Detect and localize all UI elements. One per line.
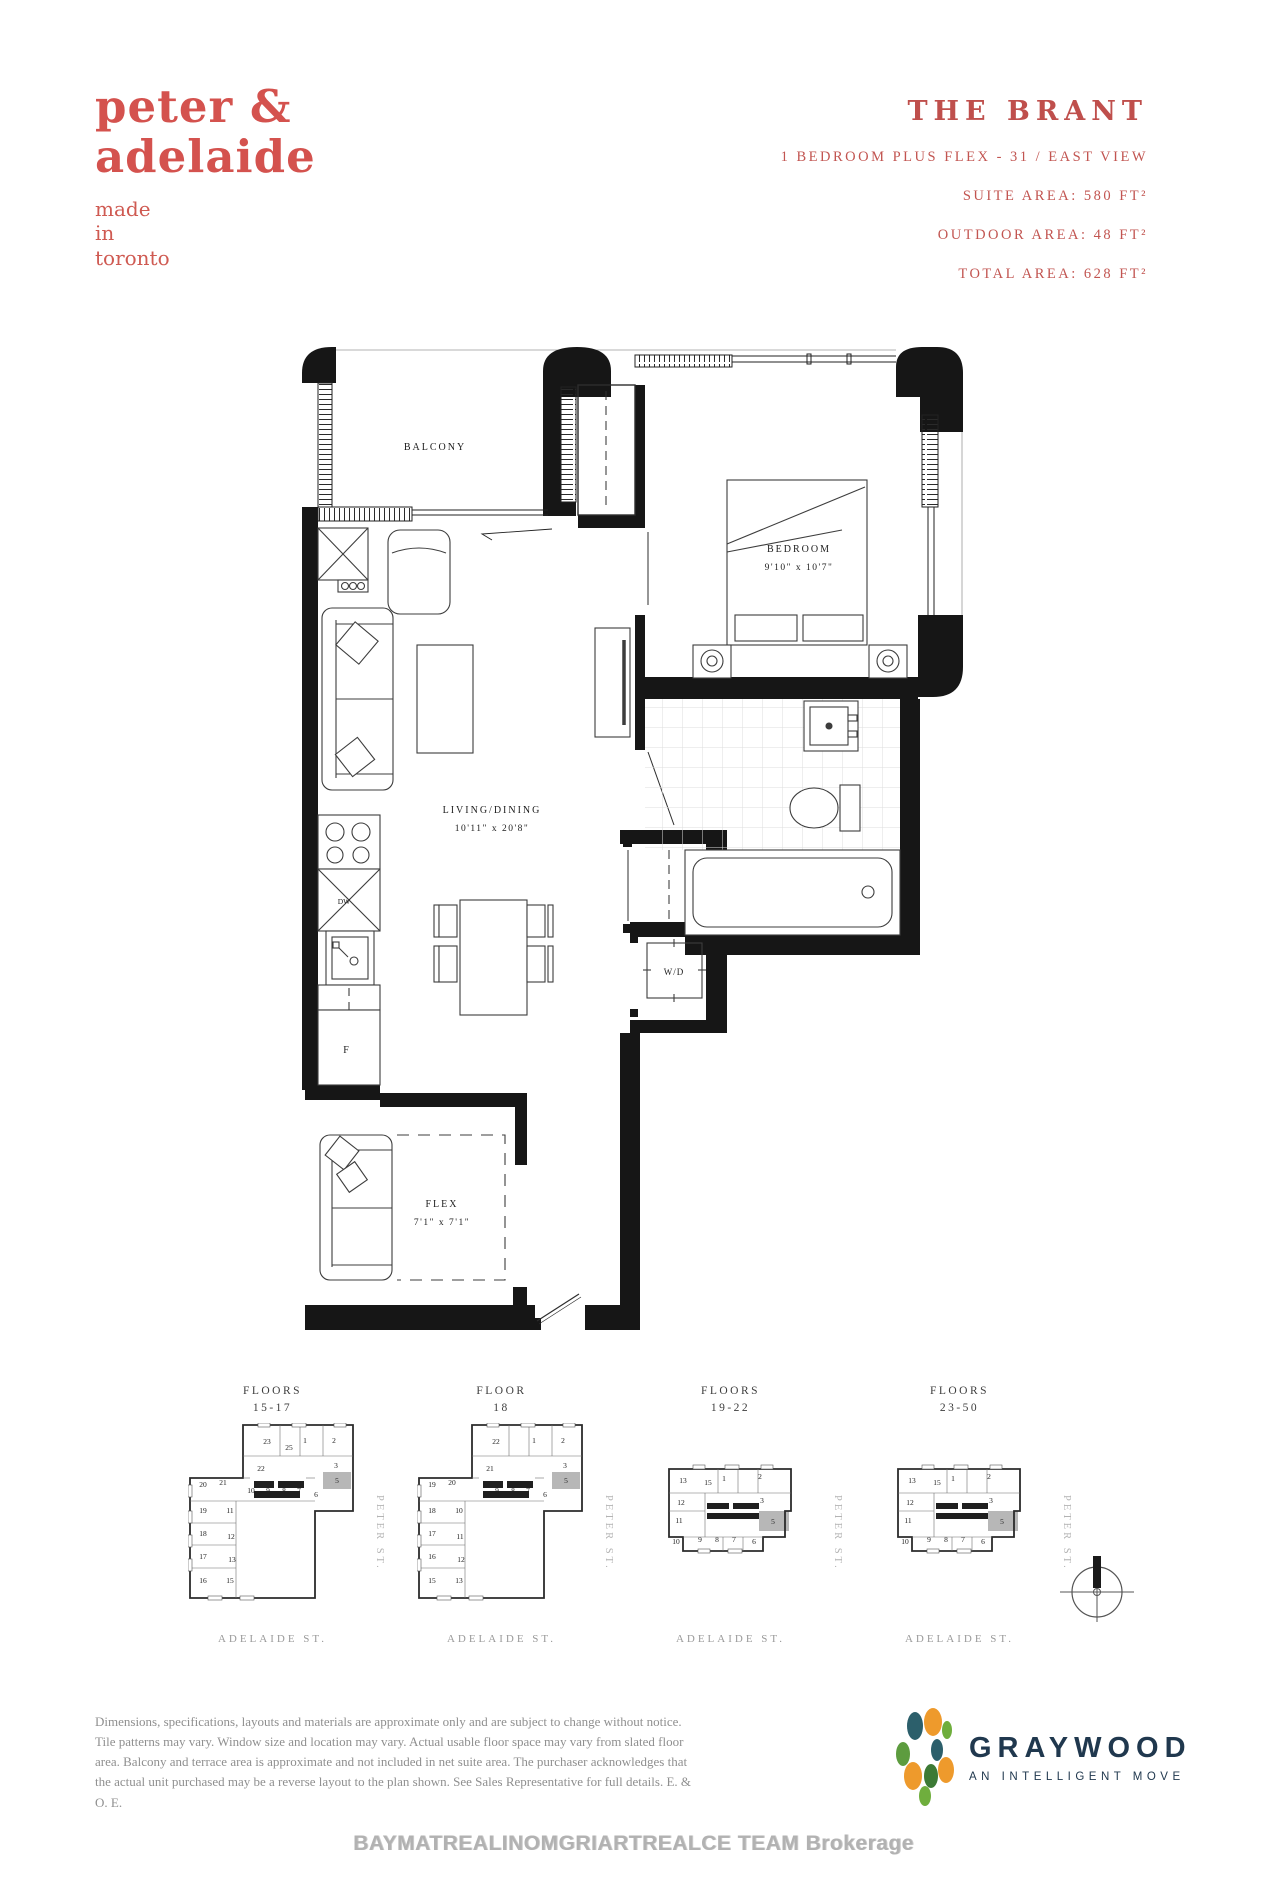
suite-header: THE BRANT 1 BEDROOM PLUS FLEX - 31 / EAS…: [781, 96, 1148, 283]
unit-number: 6: [314, 1490, 318, 1499]
unit-number: 10: [455, 1506, 463, 1515]
dw-label: DW: [338, 897, 351, 906]
unit-number: 2: [561, 1436, 565, 1445]
unit-number: 21: [219, 1478, 227, 1487]
unit-number: 9: [266, 1486, 270, 1495]
unit-number: 8: [715, 1535, 719, 1544]
adelaide-st-label: ADELAIDE ST.: [158, 1633, 387, 1645]
unit-number: 1: [722, 1474, 726, 1483]
unit-number: 15: [933, 1478, 941, 1487]
unit-number: 7: [526, 1486, 530, 1495]
dining-chair: [527, 905, 545, 937]
unit-number: 1: [303, 1436, 307, 1445]
unit-number: 7: [732, 1535, 736, 1544]
balcony-label: BALCONY: [404, 442, 466, 453]
wd-label: W/D: [664, 967, 685, 977]
peter-st-label: PETER ST.: [832, 1495, 843, 1571]
unit-number: 9: [927, 1535, 931, 1544]
unit-number: 8: [282, 1486, 286, 1495]
unit-number: 12: [457, 1555, 465, 1564]
graywood-logo: GRAYWOOD AN INTELLIGENT MOVE: [893, 1708, 1192, 1806]
unit-number: 1: [532, 1436, 536, 1445]
unit-number: 19: [428, 1480, 436, 1489]
hall-closet: [578, 385, 635, 515]
unit-number: 22: [257, 1464, 265, 1473]
balcony-rail: [318, 507, 412, 521]
floorplan-page: peter & adelaide made in toronto THE BRA…: [0, 0, 1267, 1900]
unit-number: 18: [428, 1506, 436, 1515]
fridge-label: F: [343, 1045, 349, 1056]
unit-number: 5: [1000, 1517, 1004, 1526]
coffee-table: [417, 645, 473, 753]
unit-number: 9: [495, 1486, 499, 1495]
unit-number: 15: [704, 1478, 712, 1487]
unit-number: 19: [199, 1506, 207, 1515]
unit-number: 8: [944, 1535, 948, 1544]
unit-number: 8: [511, 1486, 515, 1495]
unit-number: 2: [987, 1472, 991, 1481]
unit-number: 3: [760, 1496, 764, 1505]
graywood-tagline: AN INTELLIGENT MOVE: [969, 1771, 1192, 1783]
unit-number: 9: [698, 1535, 702, 1544]
dining-chair: [527, 946, 545, 982]
suite-title: THE BRANT: [781, 96, 1148, 127]
unit-number: 11: [904, 1516, 911, 1525]
unit-number: 5: [771, 1517, 775, 1526]
unit-number: 6: [981, 1537, 985, 1546]
peter-st-label: PETER ST.: [374, 1495, 385, 1571]
key-plan: FLOORS23-50131512123115109876PETER ST.AD…: [845, 1383, 1074, 1663]
brand-logo-line1: peter &: [95, 82, 316, 132]
unit-number: 5: [335, 1476, 339, 1485]
key-plan-footprint: 22122131920987651810171116121513: [417, 1423, 587, 1608]
flex-label: FLEX: [426, 1199, 459, 1210]
bathroom-floor: [645, 699, 900, 850]
unit-number: 12: [677, 1498, 685, 1507]
unit-number: 13: [679, 1476, 687, 1485]
suite-subtitle: 1 BEDROOM PLUS FLEX - 31 / EAST VIEW: [781, 149, 1148, 166]
unit-number: 22: [492, 1437, 500, 1446]
unit-number: 21: [486, 1464, 494, 1473]
key-plan-title: FLOORS19-22: [616, 1383, 845, 1423]
fridge: [318, 1010, 380, 1085]
bedroom-east-window: [922, 415, 938, 507]
brand-logo: peter & adelaide made in toronto: [95, 82, 316, 270]
unit-number: 17: [428, 1529, 436, 1538]
dining-table: [460, 900, 527, 1015]
adelaide-st-label: ADELAIDE ST.: [845, 1633, 1074, 1645]
balcony-west-window: [318, 383, 332, 507]
bedroom-label: BEDROOM: [767, 544, 831, 555]
unit-number: 10: [901, 1537, 909, 1546]
unit-number: 2: [332, 1436, 336, 1445]
unit-number: 1: [951, 1474, 955, 1483]
key-plan-title: FLOORS15-17: [158, 1383, 387, 1423]
unit-number: 7: [961, 1535, 965, 1544]
key-plans-row: FLOORS15-1723251222320211098765191118121…: [158, 1383, 1074, 1663]
unit-number: 11: [675, 1516, 682, 1525]
adelaide-st-label: ADELAIDE ST.: [387, 1633, 616, 1645]
unit-number: 17: [199, 1552, 207, 1561]
unit-number: 20: [199, 1480, 207, 1489]
dining-chair: [439, 905, 457, 937]
unit-number: 6: [543, 1490, 547, 1499]
dining-chair: [439, 946, 457, 982]
unit-number: 13: [455, 1576, 463, 1585]
unit-number: 15: [428, 1576, 436, 1585]
unit-number: 16: [428, 1552, 436, 1561]
bedroom-north-window: [635, 355, 732, 367]
living-dims: 10'11" x 20'8": [455, 824, 530, 834]
floor-plan-drawing: BALCONY BEDROOM 9'10" x 10'7" LIVING/DIN…: [302, 347, 965, 1330]
unit-number: 3: [989, 1496, 993, 1505]
adelaide-st-label: ADELAIDE ST.: [616, 1633, 845, 1645]
brokerage-watermark: BAYMATREALINOMGRIARTREALCE TEAM Brokerag…: [353, 1832, 914, 1856]
key-plan-footprint: 131512123115109876: [892, 1463, 1027, 1563]
suite-area: SUITE AREA: 580 FT²: [781, 188, 1148, 205]
peter-st-label: PETER ST.: [603, 1495, 614, 1571]
unit-number: 18: [199, 1529, 207, 1538]
unit-number: 16: [199, 1576, 207, 1585]
unit-number: 13: [908, 1476, 916, 1485]
unit-number: 3: [563, 1461, 567, 1470]
unit-number: 20: [448, 1478, 456, 1487]
key-plan: FLOORS19-22131512123115109876PETER ST.AD…: [616, 1383, 845, 1663]
key-plan: FLOOR1822122131920987651810171116121513P…: [387, 1383, 616, 1663]
brand-tagline: made in toronto: [95, 197, 316, 270]
key-plan-title: FLOOR18: [387, 1383, 616, 1423]
unit-number: 11: [456, 1532, 463, 1541]
unit-number: 13: [228, 1555, 236, 1564]
unit-number: 3: [334, 1461, 338, 1470]
unit-number: 15: [226, 1576, 234, 1585]
disclaimer-text: Dimensions, specifications, layouts and …: [95, 1712, 693, 1813]
entry-door: [537, 1294, 579, 1321]
toilet: [840, 785, 860, 831]
total-area: TOTAL AREA: 628 FT²: [781, 266, 1148, 283]
key-plan: FLOORS15-1723251222320211098765191118121…: [158, 1383, 387, 1663]
unit-number: 23: [263, 1437, 271, 1446]
unit-number: 5: [564, 1476, 568, 1485]
unit-number: 12: [227, 1532, 235, 1541]
hall-west-window: [561, 387, 576, 502]
flex-dims: 7'1" x 7'1": [414, 1218, 470, 1228]
unit-number: 12: [906, 1498, 914, 1507]
key-plan-footprint: 232512223202110987651911181217131615: [188, 1423, 358, 1608]
unit-number: 7: [297, 1486, 301, 1495]
bedroom-dims: 9'10" x 10'7": [765, 563, 834, 573]
unit-number: 2: [758, 1472, 762, 1481]
graywood-leaves-icon: [893, 1708, 955, 1806]
living-label: LIVING/DINING: [443, 805, 542, 816]
unit-number: 6: [752, 1537, 756, 1546]
unit-number: 10: [247, 1486, 255, 1495]
key-plan-title: FLOORS23-50: [845, 1383, 1074, 1423]
unit-number: 11: [226, 1506, 233, 1515]
unit-number: 10: [672, 1537, 680, 1546]
cooktop: [318, 815, 380, 869]
key-plan-footprint: 131512123115109876: [663, 1463, 798, 1563]
graywood-name: GRAYWOOD: [969, 1732, 1192, 1765]
lounge-chair: [388, 530, 450, 614]
unit-number: 25: [285, 1443, 293, 1452]
compass-icon: [1058, 1552, 1136, 1630]
brand-logo-line2: adelaide: [95, 132, 316, 182]
outdoor-area: OUTDOOR AREA: 48 FT²: [781, 227, 1148, 244]
